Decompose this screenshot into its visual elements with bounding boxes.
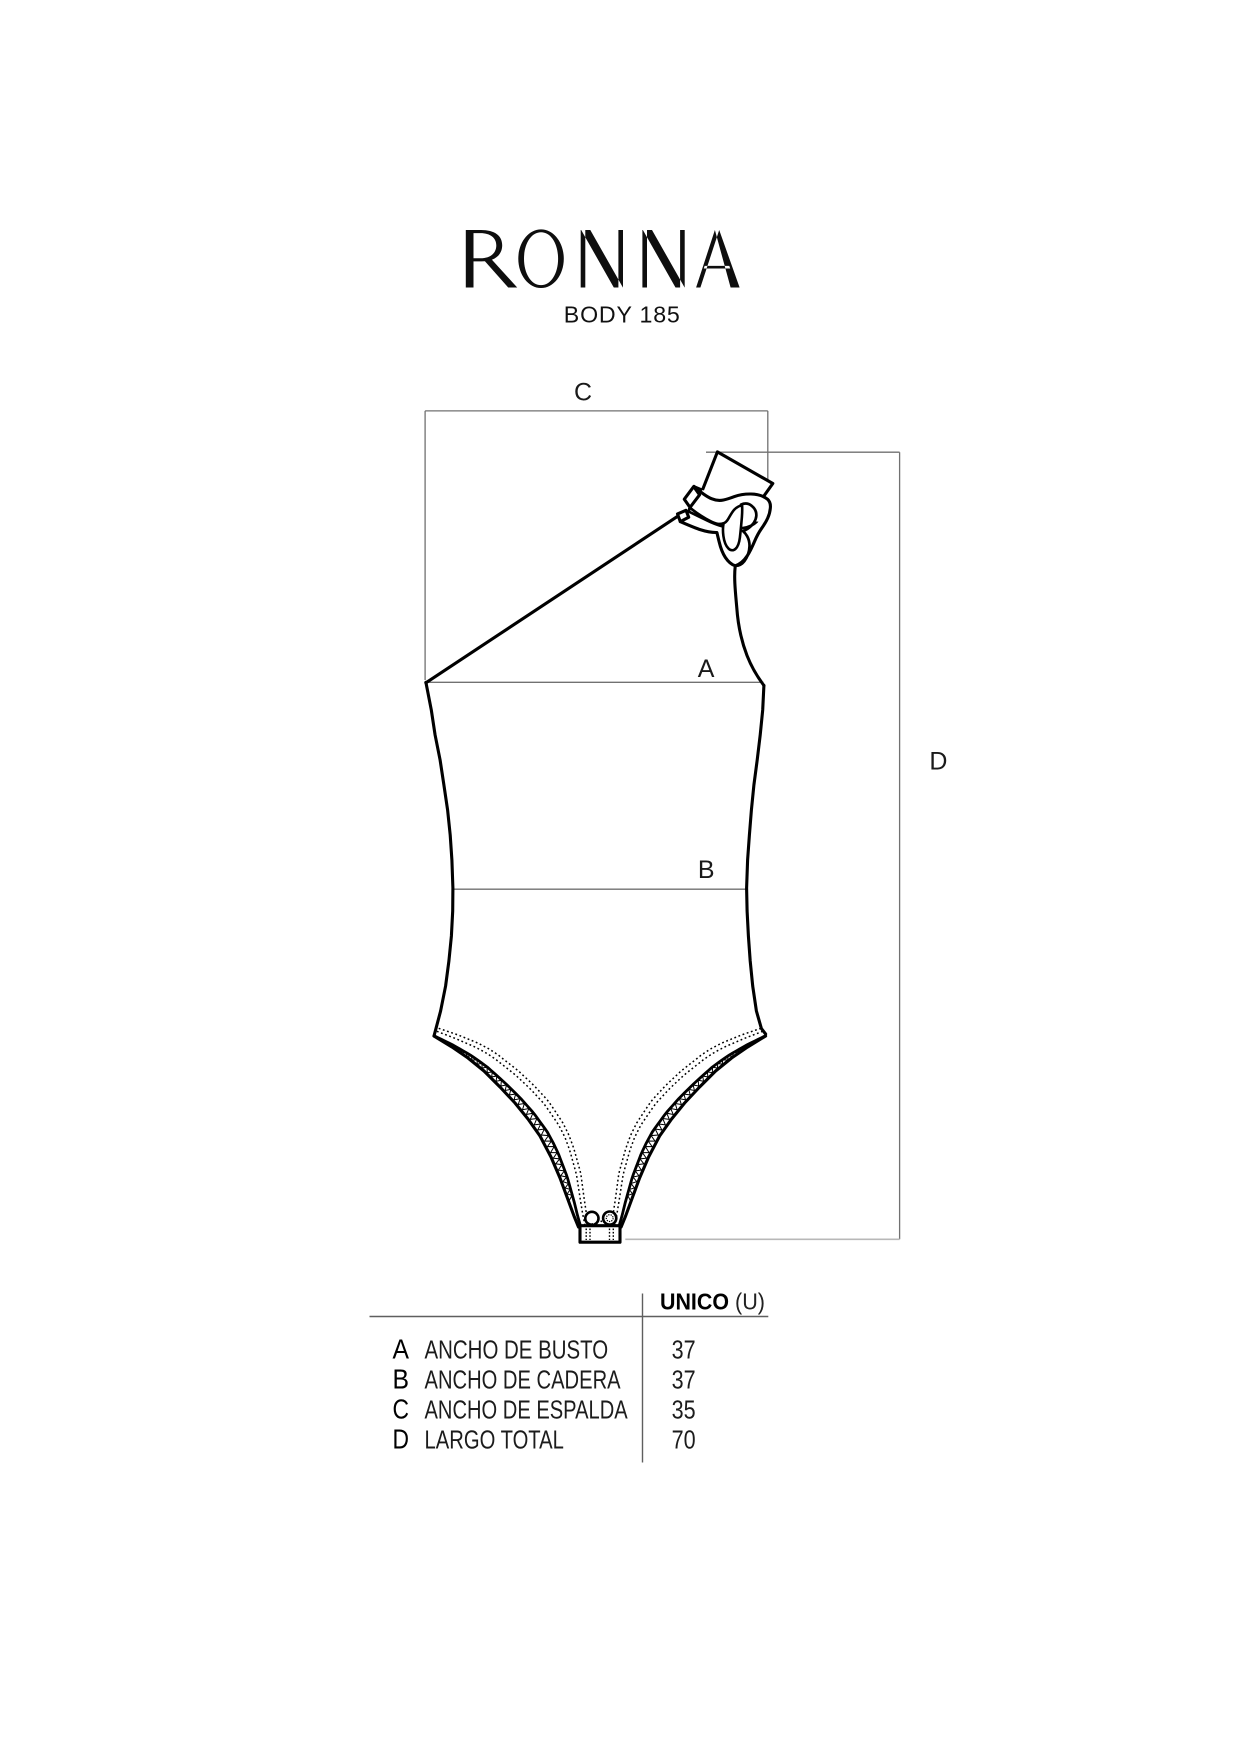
svg-text:C: C — [393, 1394, 410, 1425]
svg-text:UNICO: UNICO — [660, 1289, 729, 1315]
svg-text:LARGO TOTAL: LARGO TOTAL — [425, 1425, 564, 1455]
svg-text:37: 37 — [672, 1364, 696, 1394]
svg-text:C: C — [574, 378, 592, 406]
svg-text:A: A — [393, 1333, 410, 1364]
svg-text:(U): (U) — [735, 1289, 765, 1315]
svg-text:A: A — [698, 655, 715, 683]
svg-text:D: D — [929, 748, 947, 776]
svg-text:70: 70 — [672, 1425, 696, 1455]
svg-text:B: B — [698, 856, 715, 884]
svg-text:D: D — [393, 1424, 410, 1455]
svg-text:ANCHO DE CADERA: ANCHO DE CADERA — [425, 1364, 622, 1394]
svg-text:ANCHO DE ESPALDA: ANCHO DE ESPALDA — [425, 1395, 629, 1425]
svg-text:BODY 185: BODY 185 — [564, 301, 681, 327]
svg-text:35: 35 — [672, 1395, 696, 1425]
svg-text:37: 37 — [672, 1334, 696, 1364]
svg-text:ANCHO DE BUSTO: ANCHO DE BUSTO — [425, 1334, 609, 1364]
svg-text:B: B — [393, 1363, 410, 1394]
